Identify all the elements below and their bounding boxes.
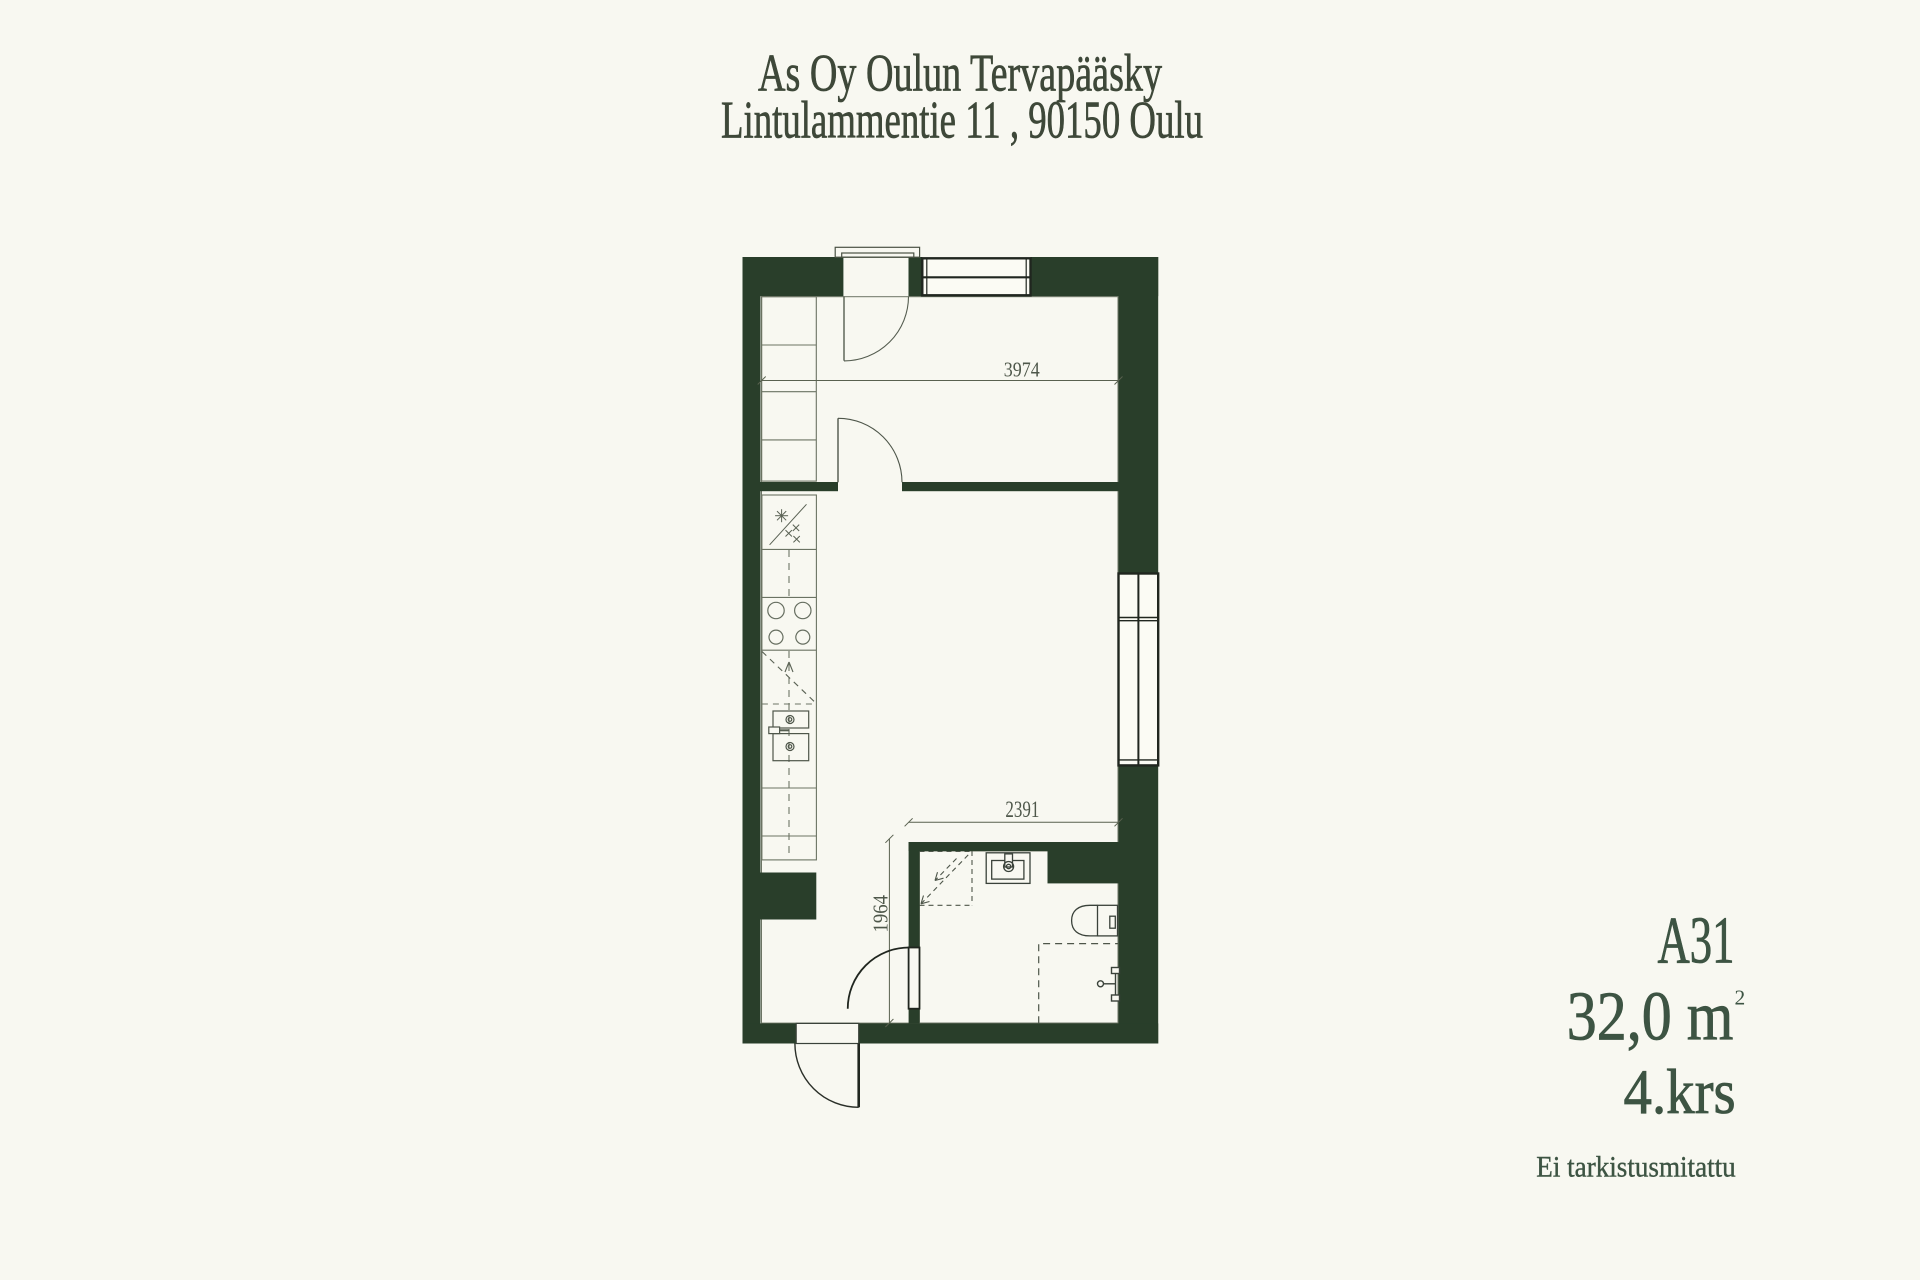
svg-text:1964: 1964 — [869, 895, 893, 933]
svg-text:Lintulammentie 11 , 90150 Oulu: Lintulammentie 11 , 90150 Oulu — [721, 91, 1203, 149]
svg-text:2391: 2391 — [1005, 797, 1039, 823]
svg-text:32,0 m: 32,0 m — [1567, 979, 1734, 1056]
svg-text:3974: 3974 — [1004, 358, 1040, 382]
svg-text:2: 2 — [1735, 985, 1746, 1009]
svg-text:4.krs: 4.krs — [1624, 1056, 1736, 1127]
svg-text:Ei tarkistusmitattu: Ei tarkistusmitattu — [1536, 1152, 1736, 1184]
svg-text:A31: A31 — [1658, 905, 1735, 978]
